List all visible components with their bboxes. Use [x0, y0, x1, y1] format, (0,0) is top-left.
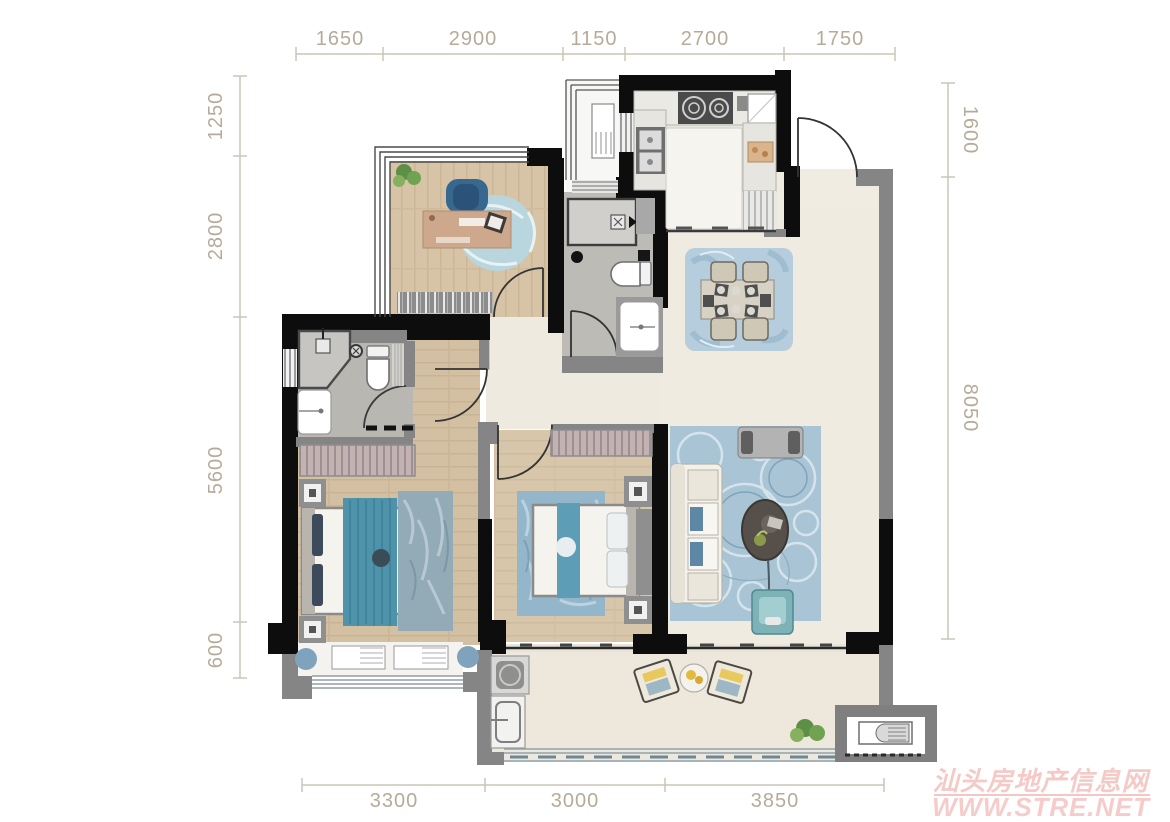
svg-text:1150: 1150	[570, 28, 617, 50]
svg-text:600: 600	[205, 632, 227, 668]
svg-text:5600: 5600	[205, 446, 227, 495]
svg-text:8050: 8050	[959, 384, 981, 433]
svg-text:WWW.STRE.NET: WWW.STRE.NET	[932, 792, 1151, 822]
svg-text:3000: 3000	[551, 790, 600, 812]
svg-text:2700: 2700	[681, 28, 730, 50]
svg-text:1600: 1600	[959, 106, 981, 155]
svg-text:2800: 2800	[205, 212, 227, 261]
svg-text:1250: 1250	[205, 92, 227, 141]
svg-text:1650: 1650	[316, 28, 365, 50]
svg-text:3850: 3850	[751, 790, 800, 812]
svg-text:1750: 1750	[816, 28, 865, 50]
svg-text:3300: 3300	[370, 790, 419, 812]
svg-text:2900: 2900	[449, 28, 498, 50]
